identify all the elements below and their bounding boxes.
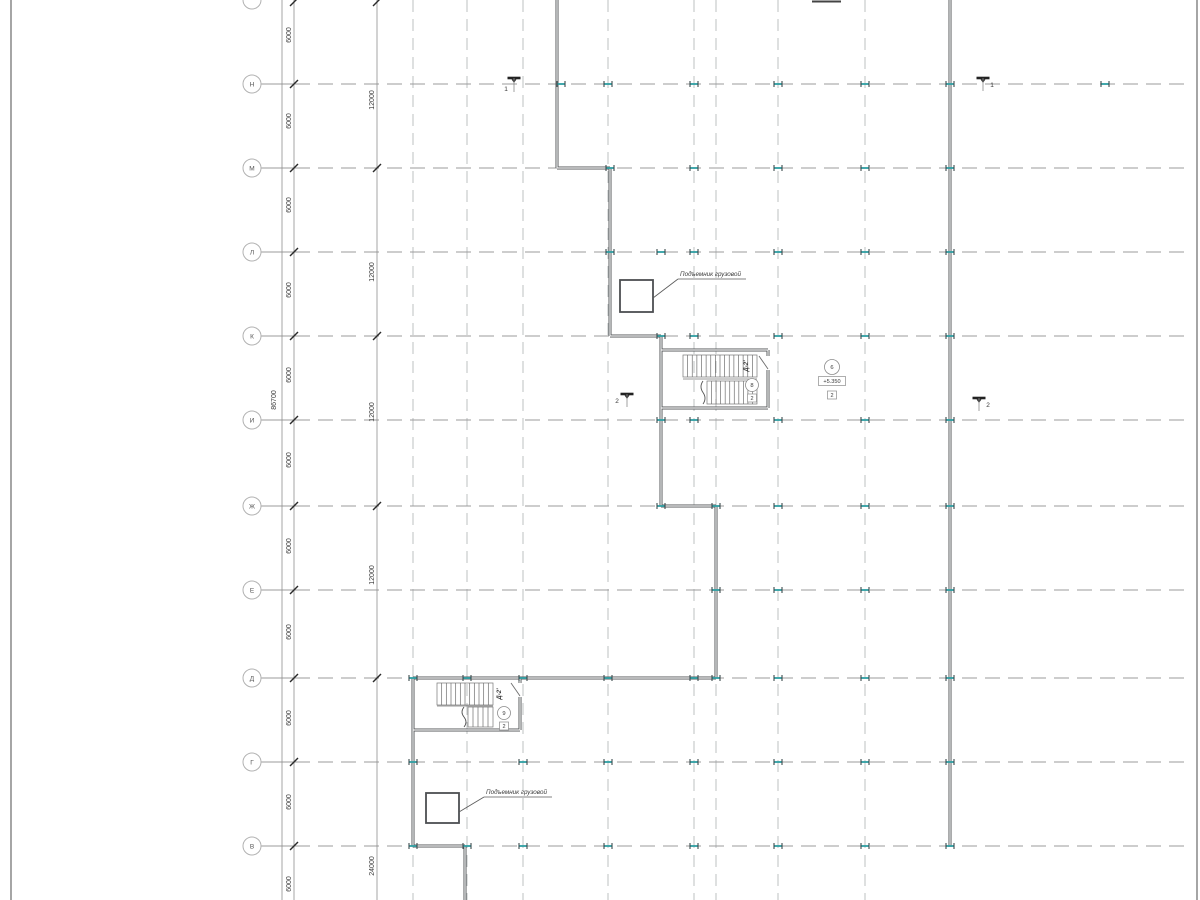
axis-label: В: [250, 843, 254, 850]
dim-text: 6000: [286, 367, 293, 383]
section-number: 1: [990, 82, 994, 89]
dim-text: 6000: [286, 710, 293, 726]
elevator-annotation: Подъемник грузовой: [680, 270, 741, 278]
stair-label: Д-2': [497, 688, 503, 701]
drawing-sheet: НМЛКИЖЕДГВ867006000600060006000600060006…: [0, 0, 1200, 900]
axis-label: Д: [250, 675, 255, 682]
dim-text: 6000: [286, 197, 293, 213]
section-number: 1: [504, 86, 508, 93]
axis-label: М: [249, 165, 254, 172]
dim-text: 6000: [286, 876, 293, 892]
dim-text: 6000: [286, 794, 293, 810]
dim-text: 12000: [369, 90, 376, 110]
dim-text: 12000: [369, 402, 376, 422]
axis-label: Л: [250, 249, 254, 256]
dim-text: 6000: [286, 624, 293, 640]
dim-text: 6000: [286, 113, 293, 129]
axis-label: И: [250, 417, 255, 424]
dim-text: 24000: [369, 856, 376, 876]
floor-plan-canvas: НМЛКИЖЕДГВ867006000600060006000600060006…: [0, 0, 1200, 900]
dim-text: 6000: [286, 452, 293, 468]
room-number: 8: [750, 383, 753, 389]
elevator-annotation: Подъемник грузовой: [486, 788, 547, 796]
axis-label: К: [250, 333, 254, 340]
dim-text: 6000: [286, 538, 293, 554]
section-number: 2: [986, 402, 990, 409]
axis-label: Г: [250, 759, 254, 766]
room-number: 6: [830, 365, 833, 371]
dim-text: 6000: [286, 282, 293, 298]
axis-label: Е: [250, 587, 255, 594]
floor-type: 2: [830, 393, 833, 399]
dim-overall-86700: 86700: [271, 390, 278, 410]
stair-label: Д-2': [744, 360, 750, 373]
room-number: 9: [502, 711, 505, 717]
dim-text: 12000: [369, 565, 376, 585]
section-number: 2: [615, 398, 619, 405]
dim-text: 12000: [369, 262, 376, 282]
floor-type: 2: [750, 396, 753, 402]
axis-label: Н: [250, 81, 255, 88]
axis-label: Ж: [249, 503, 255, 510]
level-value: +5.350: [823, 379, 840, 385]
floor-type: 2: [502, 724, 505, 730]
dim-text: 6000: [286, 27, 293, 43]
sheet-background: [0, 0, 1200, 900]
